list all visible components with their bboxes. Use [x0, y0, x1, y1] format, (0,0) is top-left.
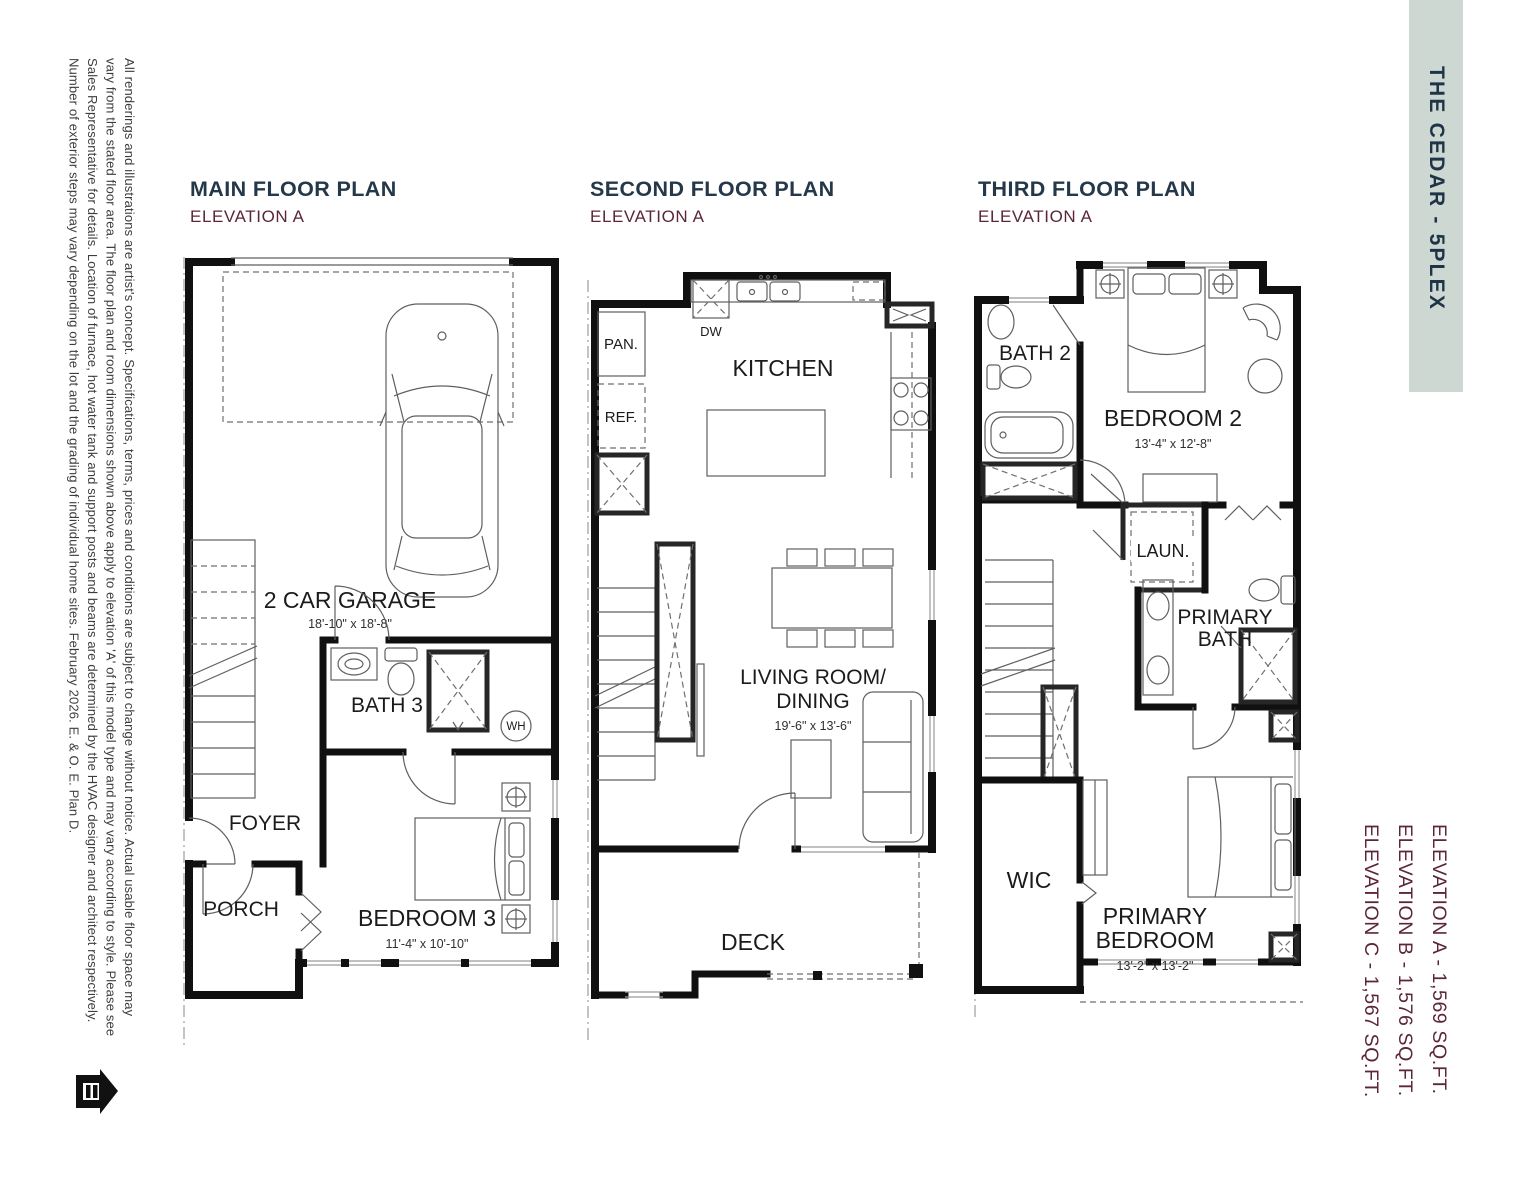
label-bedroom-3: BEDROOM 3 — [358, 905, 496, 931]
chair — [1243, 304, 1280, 340]
primary-bedroom: PRIMARY BEDROOM 13'-2" x 13'-2" — [1080, 750, 1303, 1002]
disclaimer-line: vary from the stated floor area. The flo… — [101, 58, 120, 1076]
main-floor-header: MAIN FLOOR PLAN ELEVATION A — [190, 177, 397, 227]
main-floor-plan-drawing: 2 CAR GARAGE 18'-10" x 18'-8" WH BATH 3 … — [183, 252, 563, 1052]
floorplan-sheet: All renderings and illustrations are art… — [0, 0, 1536, 1187]
bed — [1128, 268, 1205, 392]
disclaimer-line: Number of exterior steps may vary depend… — [64, 58, 83, 1076]
bath-2: BATH 2 — [978, 265, 1080, 500]
deck: DECK — [595, 849, 923, 997]
label-bath-3: BATH 3 — [351, 694, 423, 717]
kitchen: PAN. REF. DW KITCHEN — [595, 276, 932, 850]
car-top-view — [380, 304, 504, 597]
label-bedroom-2: BEDROOM 2 — [1104, 405, 1242, 431]
page-title: MAIN FLOOR PLAN — [190, 177, 397, 202]
stairs — [189, 540, 257, 798]
bed — [415, 818, 530, 900]
plan-name-banner: THE CEDAR - 5PLEX — [1409, 0, 1463, 392]
label-kitchen: KITCHEN — [733, 355, 834, 381]
label-primary-bedroom-1: PRIMARY — [1103, 903, 1207, 929]
page-title: THIRD FLOOR PLAN — [978, 177, 1196, 202]
label-deck: DECK — [721, 929, 786, 955]
label-primary-bath-1: PRIMARY — [1177, 606, 1272, 629]
label-bedroom-3-dims: 11'-4" x 10'-10" — [386, 937, 469, 951]
third-floor-plan-drawing: BATH 2 BEDROOM 2 13'-4" x 12'-8" — [973, 250, 1318, 1050]
elevation-b-area: ELEVATION B - 1,576 SQ.FT. — [1393, 824, 1416, 1144]
builder-home-logo-icon — [70, 1066, 120, 1118]
round-table — [1248, 359, 1282, 393]
elevation-a-area: ELEVATION A - 1,569 SQ.FT. — [1427, 824, 1450, 1144]
living-dining: LIVING ROOM/ DINING 19'-6" x 13'-6" — [595, 549, 932, 853]
label-pantry: PAN. — [604, 336, 638, 353]
label-primary-bedroom-2: BEDROOM — [1096, 927, 1215, 953]
stairs — [595, 544, 704, 780]
elevation-subtitle: ELEVATION A — [190, 207, 397, 227]
label-garage: 2 CAR GARAGE — [264, 587, 437, 613]
ceiling-fixture — [502, 783, 530, 933]
label-dining: DINING — [776, 690, 850, 713]
foyer: FOYER — [189, 812, 301, 864]
label-porch: PORCH — [203, 898, 279, 921]
label-foyer: FOYER — [229, 812, 301, 835]
label-living-dims: 19'-6" x 13'-6" — [775, 719, 852, 733]
coffee-table — [791, 740, 831, 798]
stairs — [978, 500, 1076, 780]
label-primary-bath-2: BATH — [1198, 628, 1252, 651]
elevation-subtitle: ELEVATION A — [978, 207, 1196, 227]
third-floor-header: THIRD FLOOR PLAN ELEVATION A — [978, 177, 1196, 227]
porch: PORCH — [189, 864, 299, 995]
label-bedroom-2-dims: 13'-4" x 12'-8" — [1135, 437, 1212, 451]
label-living-room: LIVING ROOM/ — [740, 666, 886, 689]
elevation-subtitle: ELEVATION A — [590, 207, 835, 227]
second-floor-header: SECOND FLOOR PLAN ELEVATION A — [590, 177, 835, 227]
bed — [1188, 777, 1295, 897]
elevation-c-area: ELEVATION C - 1,567 SQ.FT. — [1359, 824, 1382, 1144]
label-primary-bedroom-dims: 13'-2" x 13'-2" — [1117, 959, 1194, 973]
sofa — [863, 692, 923, 842]
label-bath-2: BATH 2 — [999, 342, 1071, 365]
label-fridge: REF. — [605, 409, 638, 426]
disclaimer-text: All renderings and illustrations are art… — [58, 58, 138, 1076]
second-floor-plan-drawing: PAN. REF. DW KITCHEN LIVING ROOM/ — [585, 252, 950, 1052]
laundry: LAUN. — [1093, 505, 1205, 590]
label-laundry: LAUN. — [1136, 541, 1189, 561]
label-water-heater: WH — [506, 721, 525, 733]
elevation-areas: ELEVATION A - 1,569 SQ.FT. ELEVATION B -… — [1348, 824, 1450, 1144]
disclaimer-line: All renderings and illustrations are art… — [120, 58, 139, 1076]
page-title: SECOND FLOOR PLAN — [590, 177, 835, 202]
disclaimer-line: Sales Representative for details. Locati… — [83, 58, 102, 1076]
label-garage-dims: 18'-10" x 18'-8" — [308, 617, 392, 631]
garage: 2 CAR GARAGE 18'-10" x 18'-8" — [189, 258, 555, 963]
label-wic: WIC — [1007, 867, 1052, 893]
plan-name: THE CEDAR - 5PLEX — [1424, 66, 1448, 392]
label-dishwasher: DW — [700, 324, 722, 339]
bedroom-3: BEDROOM 3 11'-4" x 10'-10" — [299, 780, 559, 995]
